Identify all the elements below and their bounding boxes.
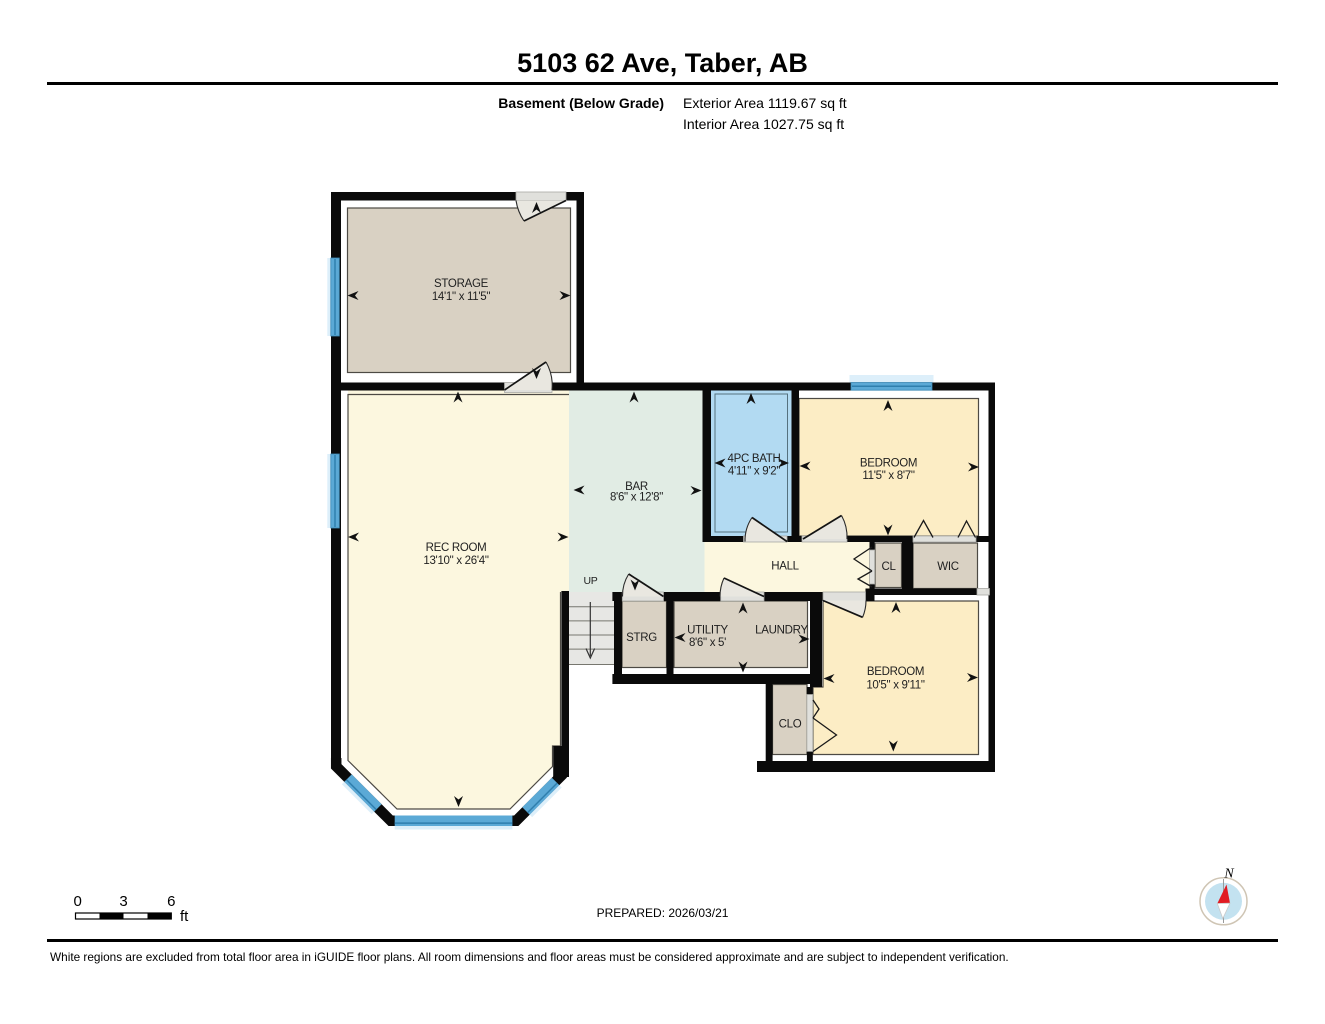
svg-text:3: 3	[119, 893, 127, 910]
svg-text:UP: UP	[584, 575, 598, 587]
svg-text:CL: CL	[881, 561, 896, 573]
svg-text:4'11" x 9'2": 4'11" x 9'2"	[728, 466, 780, 478]
svg-text:STRG: STRG	[626, 632, 657, 644]
svg-text:4PC BATH: 4PC BATH	[728, 453, 781, 465]
svg-text:REC ROOM: REC ROOM	[426, 542, 487, 554]
svg-text:STORAGE: STORAGE	[434, 278, 489, 290]
svg-text:11'5" x 8'7": 11'5" x 8'7"	[862, 470, 914, 482]
svg-text:LAUNDRY: LAUNDRY	[755, 625, 808, 637]
svg-text:14'1" x 11'5": 14'1" x 11'5"	[432, 291, 491, 303]
svg-text:N: N	[1223, 867, 1234, 882]
svg-text:BEDROOM: BEDROOM	[867, 666, 924, 678]
svg-text:ft: ft	[180, 908, 189, 925]
svg-text:8'6" x 12'8": 8'6" x 12'8"	[610, 492, 663, 504]
svg-text:8'6" x 5': 8'6" x 5'	[689, 637, 726, 649]
svg-text:0: 0	[74, 893, 82, 910]
svg-text:10'5" x 9'11": 10'5" x 9'11"	[866, 680, 925, 692]
svg-text:13'10" x 26'4": 13'10" x 26'4"	[423, 555, 488, 567]
svg-text:UTILITY: UTILITY	[687, 625, 728, 637]
svg-text:HALL: HALL	[771, 561, 799, 573]
svg-text:6: 6	[167, 893, 175, 910]
svg-text:BEDROOM: BEDROOM	[860, 458, 917, 470]
svg-text:CLO: CLO	[779, 719, 802, 731]
svg-text:WIC: WIC	[937, 561, 958, 573]
